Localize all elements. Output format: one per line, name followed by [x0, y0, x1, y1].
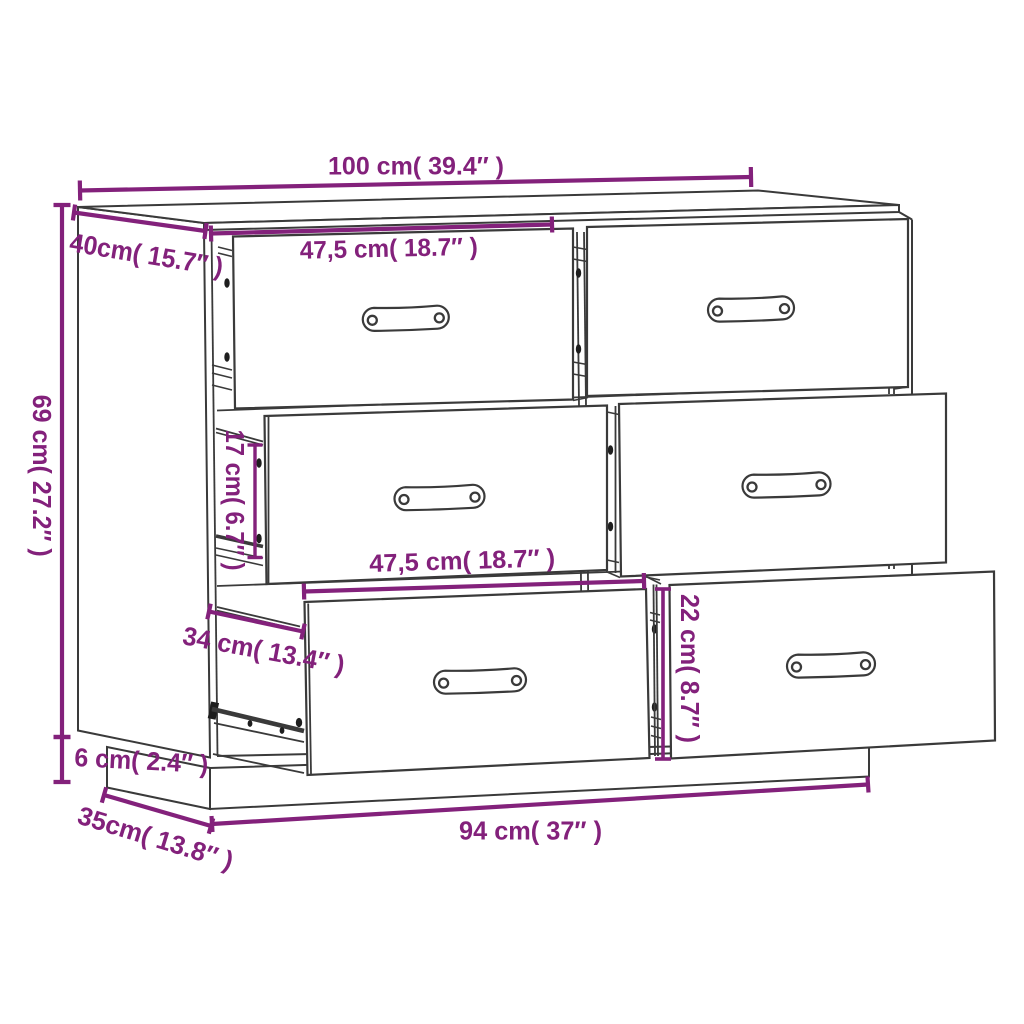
svg-text:100 cm( 39.4″ ): 100 cm( 39.4″ ) [328, 153, 504, 181]
svg-text:22 cm( 8.7″ ): 22 cm( 8.7″ ) [675, 594, 705, 743]
svg-text:47,5 cm( 18.7″ ): 47,5 cm( 18.7″ ) [369, 544, 556, 578]
svg-text:47,5 cm( 18.7″ ): 47,5 cm( 18.7″ ) [300, 233, 479, 265]
svg-text:94 cm( 37″ ): 94 cm( 37″ ) [459, 816, 602, 846]
svg-text:17 cm( 6.7″ ): 17 cm( 6.7″ ) [220, 430, 250, 571]
svg-text:69 cm( 27.2″ ): 69 cm( 27.2″ ) [27, 395, 57, 557]
